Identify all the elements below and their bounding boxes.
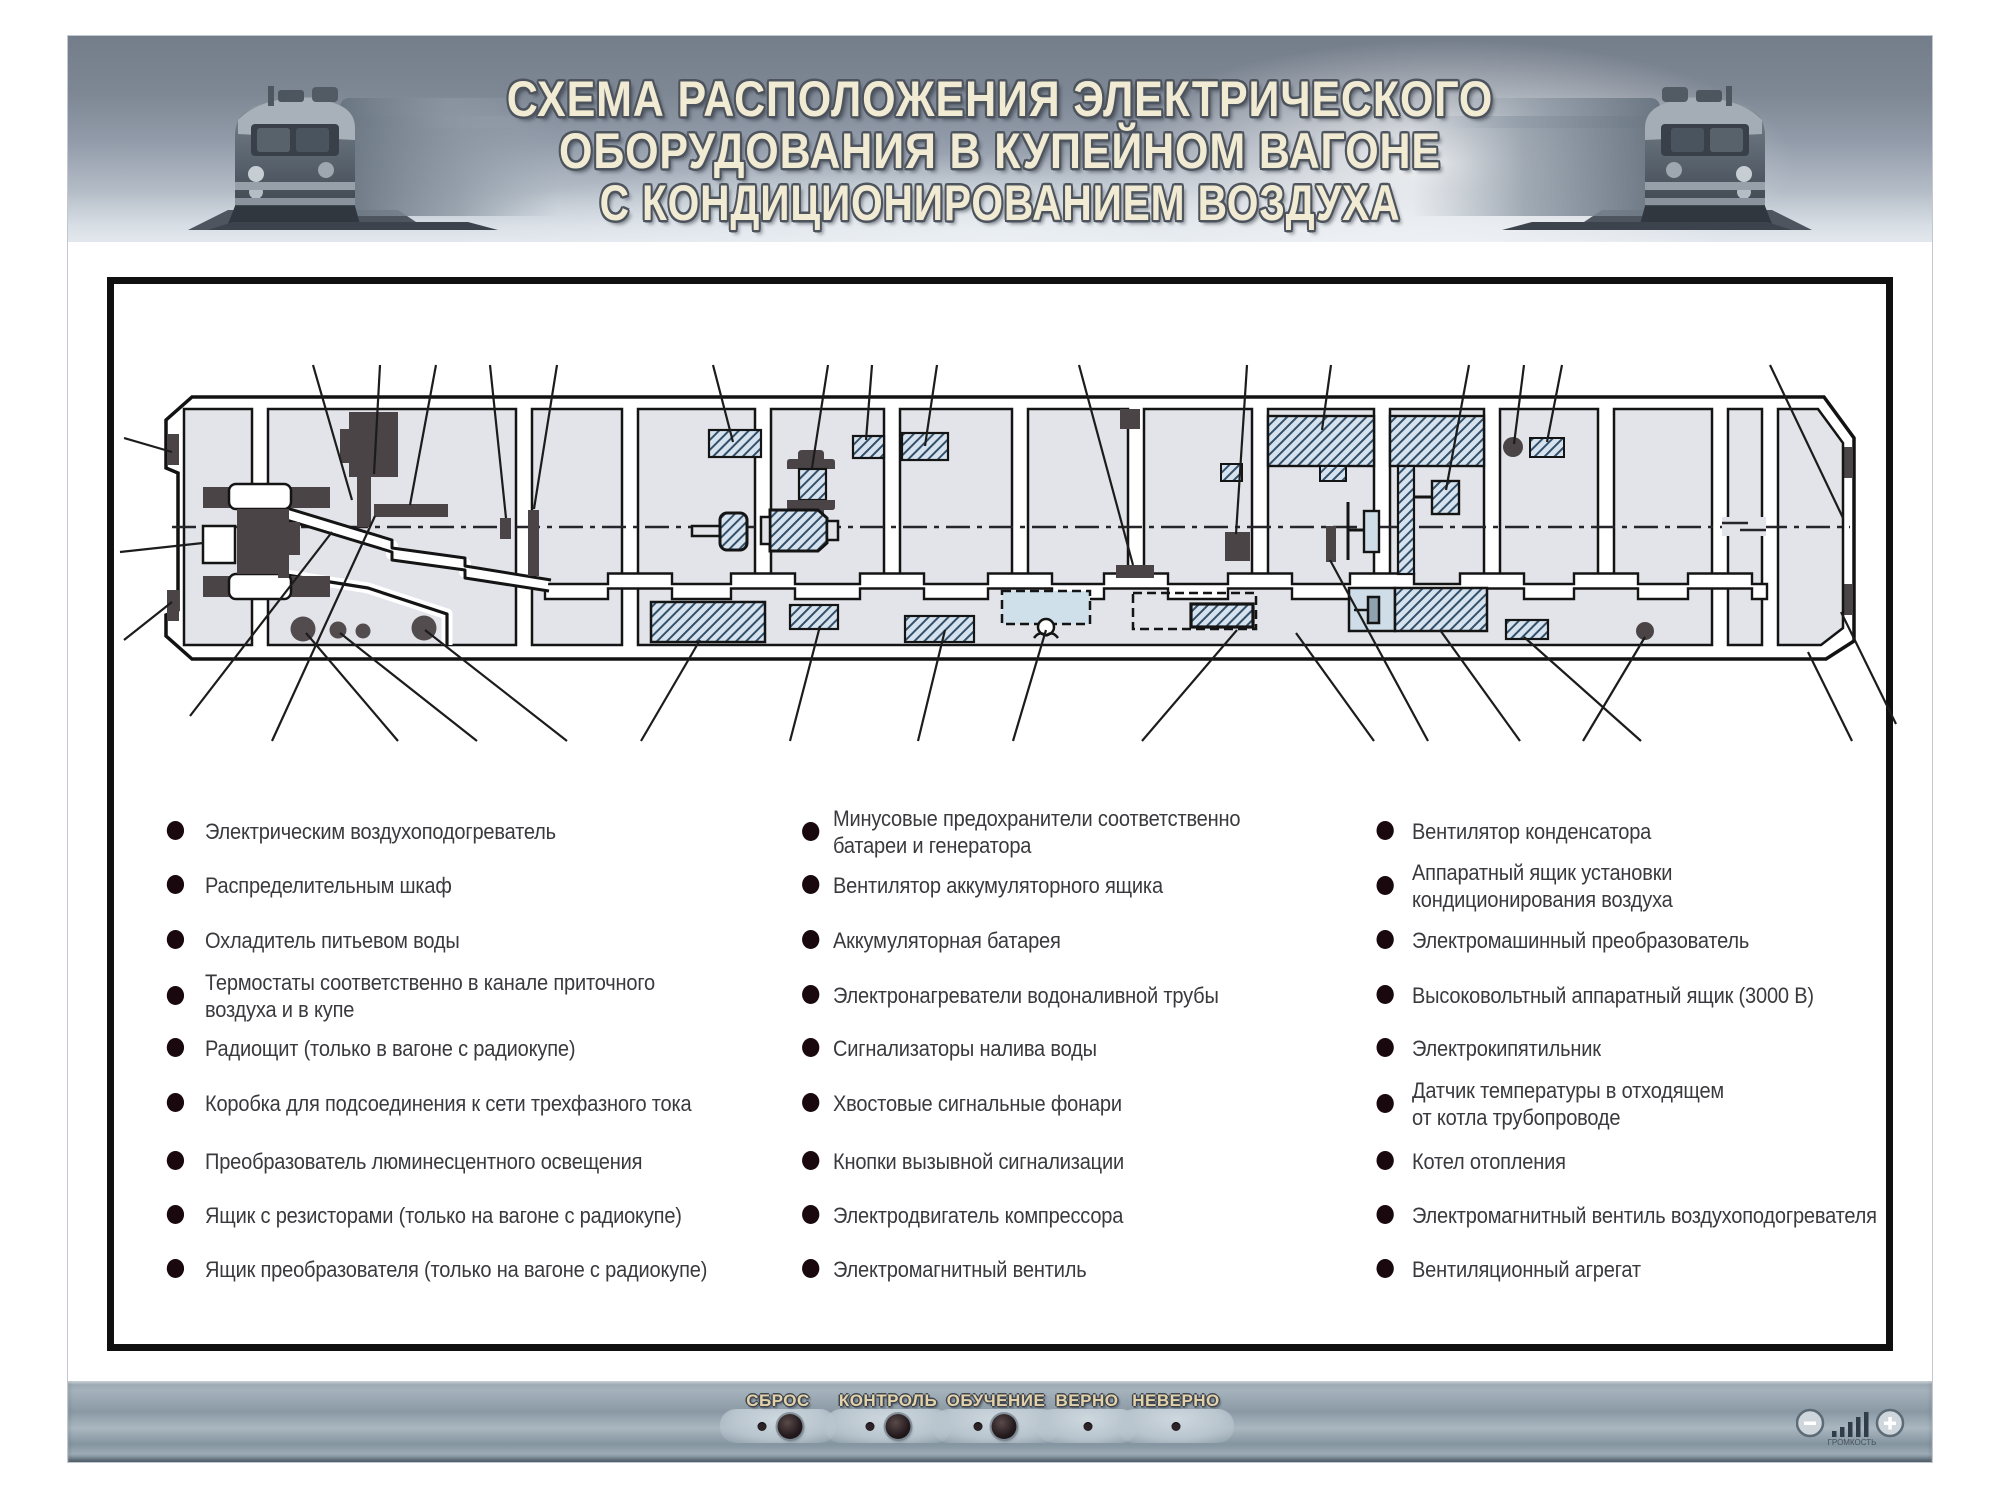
svg-text:ГРОМКОСТЬ: ГРОМКОСТЬ	[1828, 1438, 1877, 1447]
